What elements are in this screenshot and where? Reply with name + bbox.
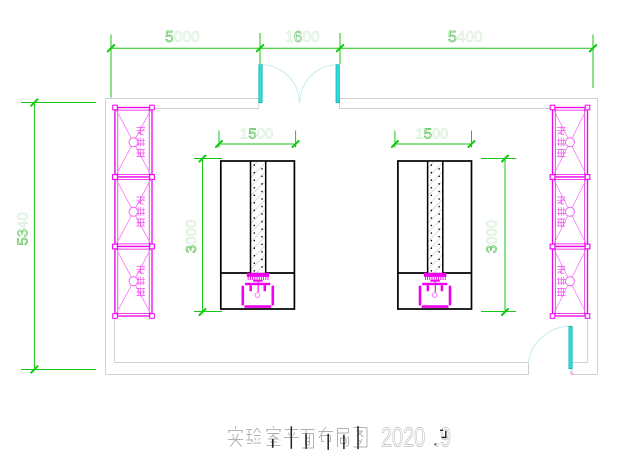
svg-text:00: 00 xyxy=(257,127,273,143)
svg-text:5: 5 xyxy=(424,127,432,143)
svg-text:5: 5 xyxy=(16,237,32,245)
svg-text:00: 00 xyxy=(432,127,448,143)
svg-text:40: 40 xyxy=(16,212,32,228)
svg-text:1: 1 xyxy=(240,127,248,143)
svg-text:000: 000 xyxy=(184,220,200,245)
svg-text:3: 3 xyxy=(485,245,501,253)
svg-text:6: 6 xyxy=(294,29,303,46)
svg-text:1: 1 xyxy=(415,127,423,143)
svg-text:000: 000 xyxy=(174,29,200,46)
svg-text:5: 5 xyxy=(165,29,174,46)
svg-text:1: 1 xyxy=(285,29,294,46)
svg-text:3: 3 xyxy=(16,229,32,237)
svg-text:400: 400 xyxy=(457,29,483,46)
svg-text:5: 5 xyxy=(248,127,256,143)
svg-text:00: 00 xyxy=(303,29,321,46)
svg-text:000: 000 xyxy=(485,220,501,245)
svg-text:2020: 2020 xyxy=(381,422,425,453)
svg-text:3: 3 xyxy=(184,245,200,253)
svg-text:5: 5 xyxy=(448,29,457,46)
